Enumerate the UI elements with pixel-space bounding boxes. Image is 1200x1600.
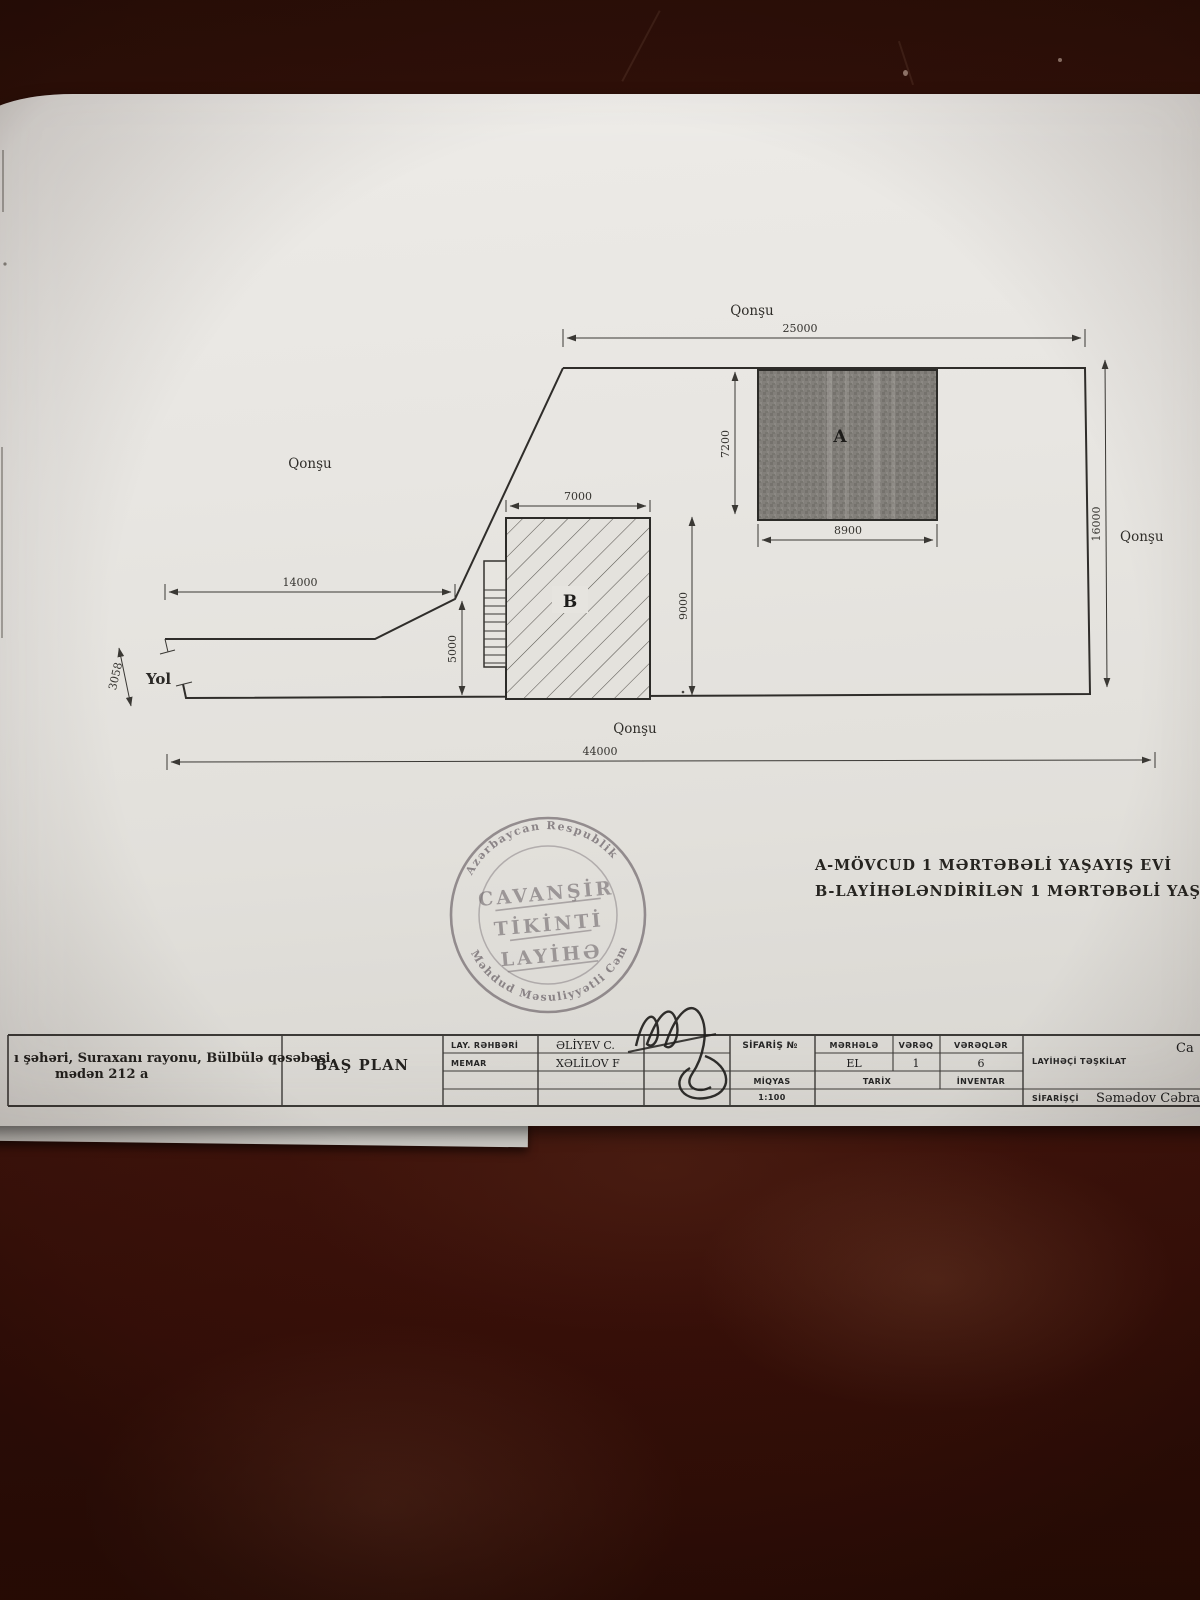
stage-value: EL: [846, 1057, 862, 1070]
dim-site-top: 25000: [783, 322, 818, 335]
sheet-no-value: 1: [913, 1057, 920, 1070]
sheets-label: VƏRƏQLƏR: [954, 1041, 1008, 1050]
role1-label: LAY. RƏHBƏRİ: [451, 1040, 518, 1050]
sheet-title: BAŞ PLAN: [315, 1057, 409, 1074]
designer-org-label: LAYİHƏÇİ TƏŞKİLAT: [1032, 1056, 1127, 1066]
order-label: SİFARİŞ №: [742, 1040, 797, 1051]
scale-label: MİQYAS: [753, 1076, 790, 1086]
neighbor-right-label: Qonşu: [1120, 529, 1164, 545]
dim-b-height: 9000: [677, 592, 690, 620]
stamp-ring-bottom-text: Məhdud Məsuliyyətli Cəmiyyə: [0, 0, 631, 1004]
dim-site-bottom: 44000: [583, 745, 618, 758]
sheet-frame-remnant: [2, 150, 7, 638]
address-line1: ı şəhəri, Suraxanı rayonu, Bülbülə qəsəb…: [14, 1051, 335, 1066]
role2-name: XƏLİLOV F: [556, 1056, 620, 1070]
dim-site-right: 16000: [1090, 507, 1103, 542]
dim-site-left: 14000: [283, 576, 318, 589]
neighbor-left-label: Qonşu: [288, 456, 332, 472]
building-a-label: A: [832, 427, 847, 447]
dim-b-width: 7000: [564, 490, 592, 503]
dim-road: 3058: [106, 661, 125, 691]
neighbor-top-label: Qonşu: [730, 303, 774, 319]
inventory-label: İNVENTAR: [957, 1076, 1005, 1086]
building-a: A: [758, 370, 937, 520]
plan-speck: [682, 691, 685, 694]
building-b-label: B: [563, 592, 577, 612]
dim-setback: 5000: [446, 635, 459, 663]
stage-label: MƏRHƏLƏ: [829, 1041, 878, 1050]
legend: A-MÖVCUD 1 MƏRTƏBƏLİ YAŞAYIŞ EVİ B-LAYİH…: [814, 855, 1200, 900]
svg-text:Azərbaycan Respublik: Azərbaycan Respublik: [462, 819, 621, 878]
neighbor-bottom-label: Qonşu: [613, 721, 657, 737]
svg-text:Məhdud Məsuliyyətli Cəmiyyə: Məhdud Məsuliyyətli Cəmiyyə: [0, 0, 631, 1004]
stamp-line1: CAVANŞİR: [477, 876, 615, 911]
designer-org-value: Ca: [1176, 1041, 1194, 1056]
sheet-no-label: VƏRƏQ: [899, 1041, 934, 1050]
dim-a-height: 7200: [719, 430, 732, 458]
client-value: Səmədov Cəbrayıl: [1096, 1091, 1200, 1106]
scale-value: 1:100: [758, 1093, 785, 1102]
legend-line-b: B-LAYİHƏLƏNDİRİLƏN 1 MƏRTƏBƏLİ YAŞAYIŞ E…: [815, 881, 1200, 900]
role1-name: ƏLİYEV C.: [556, 1038, 615, 1052]
sheets-value: 6: [978, 1057, 985, 1070]
stairs: [484, 561, 506, 667]
date-label: TARİX: [863, 1076, 892, 1086]
client-label: SİFARİŞÇİ: [1032, 1093, 1079, 1103]
legend-line-a: A-MÖVCUD 1 MƏRTƏBƏLİ YAŞAYIŞ EVİ: [814, 855, 1172, 874]
role2-label: MEMAR: [451, 1059, 487, 1068]
title-block-texts: ı şəhəri, Suraxanı rayonu, Bülbülə qəsəb…: [14, 1038, 1200, 1106]
building-b: B: [506, 518, 650, 699]
dim-a-width: 8900: [834, 524, 862, 537]
road-label: Yol: [145, 670, 171, 688]
stamp-ring-top-text: Azərbaycan Respublik: [462, 819, 621, 878]
site-plan-drawing: A B 25000 Qonşu 14000 Qonşu 44000 Qonşu …: [0, 0, 1200, 1600]
address-line2: mədən 212 a: [55, 1067, 149, 1082]
